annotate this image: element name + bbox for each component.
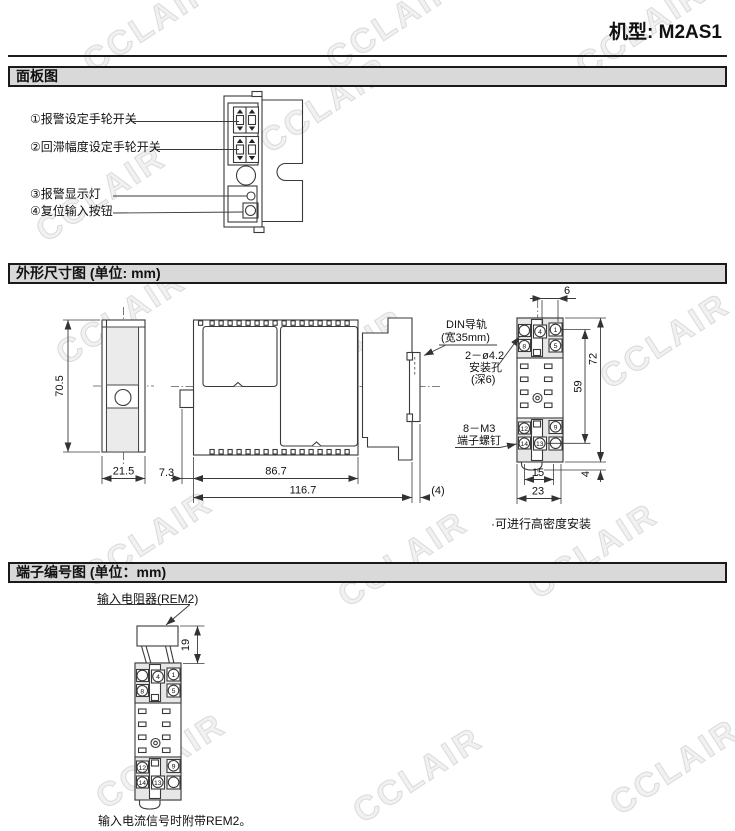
screw-label-line1: 8－M3 <box>463 423 495 435</box>
terminal-9: 9 <box>172 763 176 770</box>
terminal-12: 12 <box>139 765 147 772</box>
terminal-1: 1 <box>172 672 176 679</box>
input-resistor: 19 <box>97 605 205 664</box>
terminal-13: 13 <box>154 780 162 787</box>
dim-front-width-label: 21.5 <box>113 466 134 478</box>
section-title-dimensions: 外形尺寸图 (单位: mm) <box>8 263 727 284</box>
datasheet-page: CCLAIR CCLAIR CCLAIR CCLAIR CCLAIR CCLAI… <box>0 0 735 831</box>
dim-terminal-span-label: 59 <box>573 380 585 392</box>
din-rail-label-line1: DIN导轨 <box>446 317 487 331</box>
dim-total-depth-label: 116.7 <box>290 485 317 497</box>
header-rule <box>8 55 727 57</box>
din-clip-tab <box>140 800 161 809</box>
dim-bezel-offset-label: 7.3 <box>159 467 174 479</box>
dim-body-depth-label: 86.7 <box>265 466 286 478</box>
socket-face: 4 1 8 5 12 9 14 13 <box>135 663 181 809</box>
dim-rear-width-label: 23 <box>532 486 544 498</box>
panel-diagram <box>0 88 735 248</box>
terminal-4: 4 <box>538 329 542 336</box>
terminal-14: 14 <box>521 441 529 448</box>
density-note: ·可进行高密度安装 <box>491 515 591 532</box>
front-view: 70.5 21.5 <box>54 307 154 484</box>
mount-hole-label-line3: (深6) <box>471 373 495 386</box>
screw-label-line2: 端子螺钉 <box>457 434 501 447</box>
terminal-8: 8 <box>522 343 526 350</box>
mount-hole-label-line1: 2－ø4.2 <box>465 350 504 362</box>
socket-profile <box>363 318 421 460</box>
resistor-leg <box>142 646 152 664</box>
din-rail-label-line2: (宽35mm) <box>441 330 490 344</box>
resistor-leg <box>166 646 175 664</box>
mounting-hole-top <box>519 325 530 336</box>
thumbwheel-switch-alarm <box>234 107 259 133</box>
terminal-caption: 输入电流信号时附带REM2。 <box>98 812 251 829</box>
dim-front-height-label: 70.5 <box>54 375 66 396</box>
dimension-diagram: 70.5 21.5 <box>0 286 735 556</box>
rear-annotations: DIN导轨 (宽35mm) 2－ø4.2 安装孔 (深6) 8－M3 端子螺钉 <box>424 317 520 448</box>
dim-tab-label: 4 <box>580 471 592 477</box>
terminal-4: 4 <box>156 674 160 681</box>
panel-side-profile <box>262 100 303 222</box>
terminal-comb-top <box>199 321 350 326</box>
mounting-hole-bottom <box>168 777 179 788</box>
section-title-terminals: 端子编号图 (单位：mm) <box>8 562 727 583</box>
terminal-diagram: 19 4 1 8 5 <box>0 588 735 831</box>
dim-rail-extra-label: (4) <box>431 485 444 497</box>
terminal-12: 12 <box>521 426 529 433</box>
dim-hole-offset-label: 6 <box>564 285 570 297</box>
rear-view: 4 1 8 5 12 9 14 13 <box>517 300 563 476</box>
terminal-13: 13 <box>536 441 544 448</box>
resistor-body <box>137 626 178 646</box>
dim-slot-width-label: 15 <box>532 467 544 479</box>
dim-resistor-height-label: 19 <box>180 639 192 651</box>
section-title-panel: 面板图 <box>8 66 727 87</box>
panel-front-view <box>224 92 303 233</box>
terminal-8: 8 <box>140 688 144 695</box>
dim-rear-height-label: 72 <box>588 353 600 365</box>
terminal-14: 14 <box>139 780 147 787</box>
terminal-1: 1 <box>554 327 558 334</box>
model-label: 机型: M2AS1 <box>609 17 722 44</box>
mounting-hole-top <box>137 670 148 681</box>
front-bezel-tab <box>180 390 194 408</box>
terminal-5: 5 <box>172 688 176 695</box>
terminal-9: 9 <box>554 424 558 431</box>
terminal-5: 5 <box>554 343 558 350</box>
